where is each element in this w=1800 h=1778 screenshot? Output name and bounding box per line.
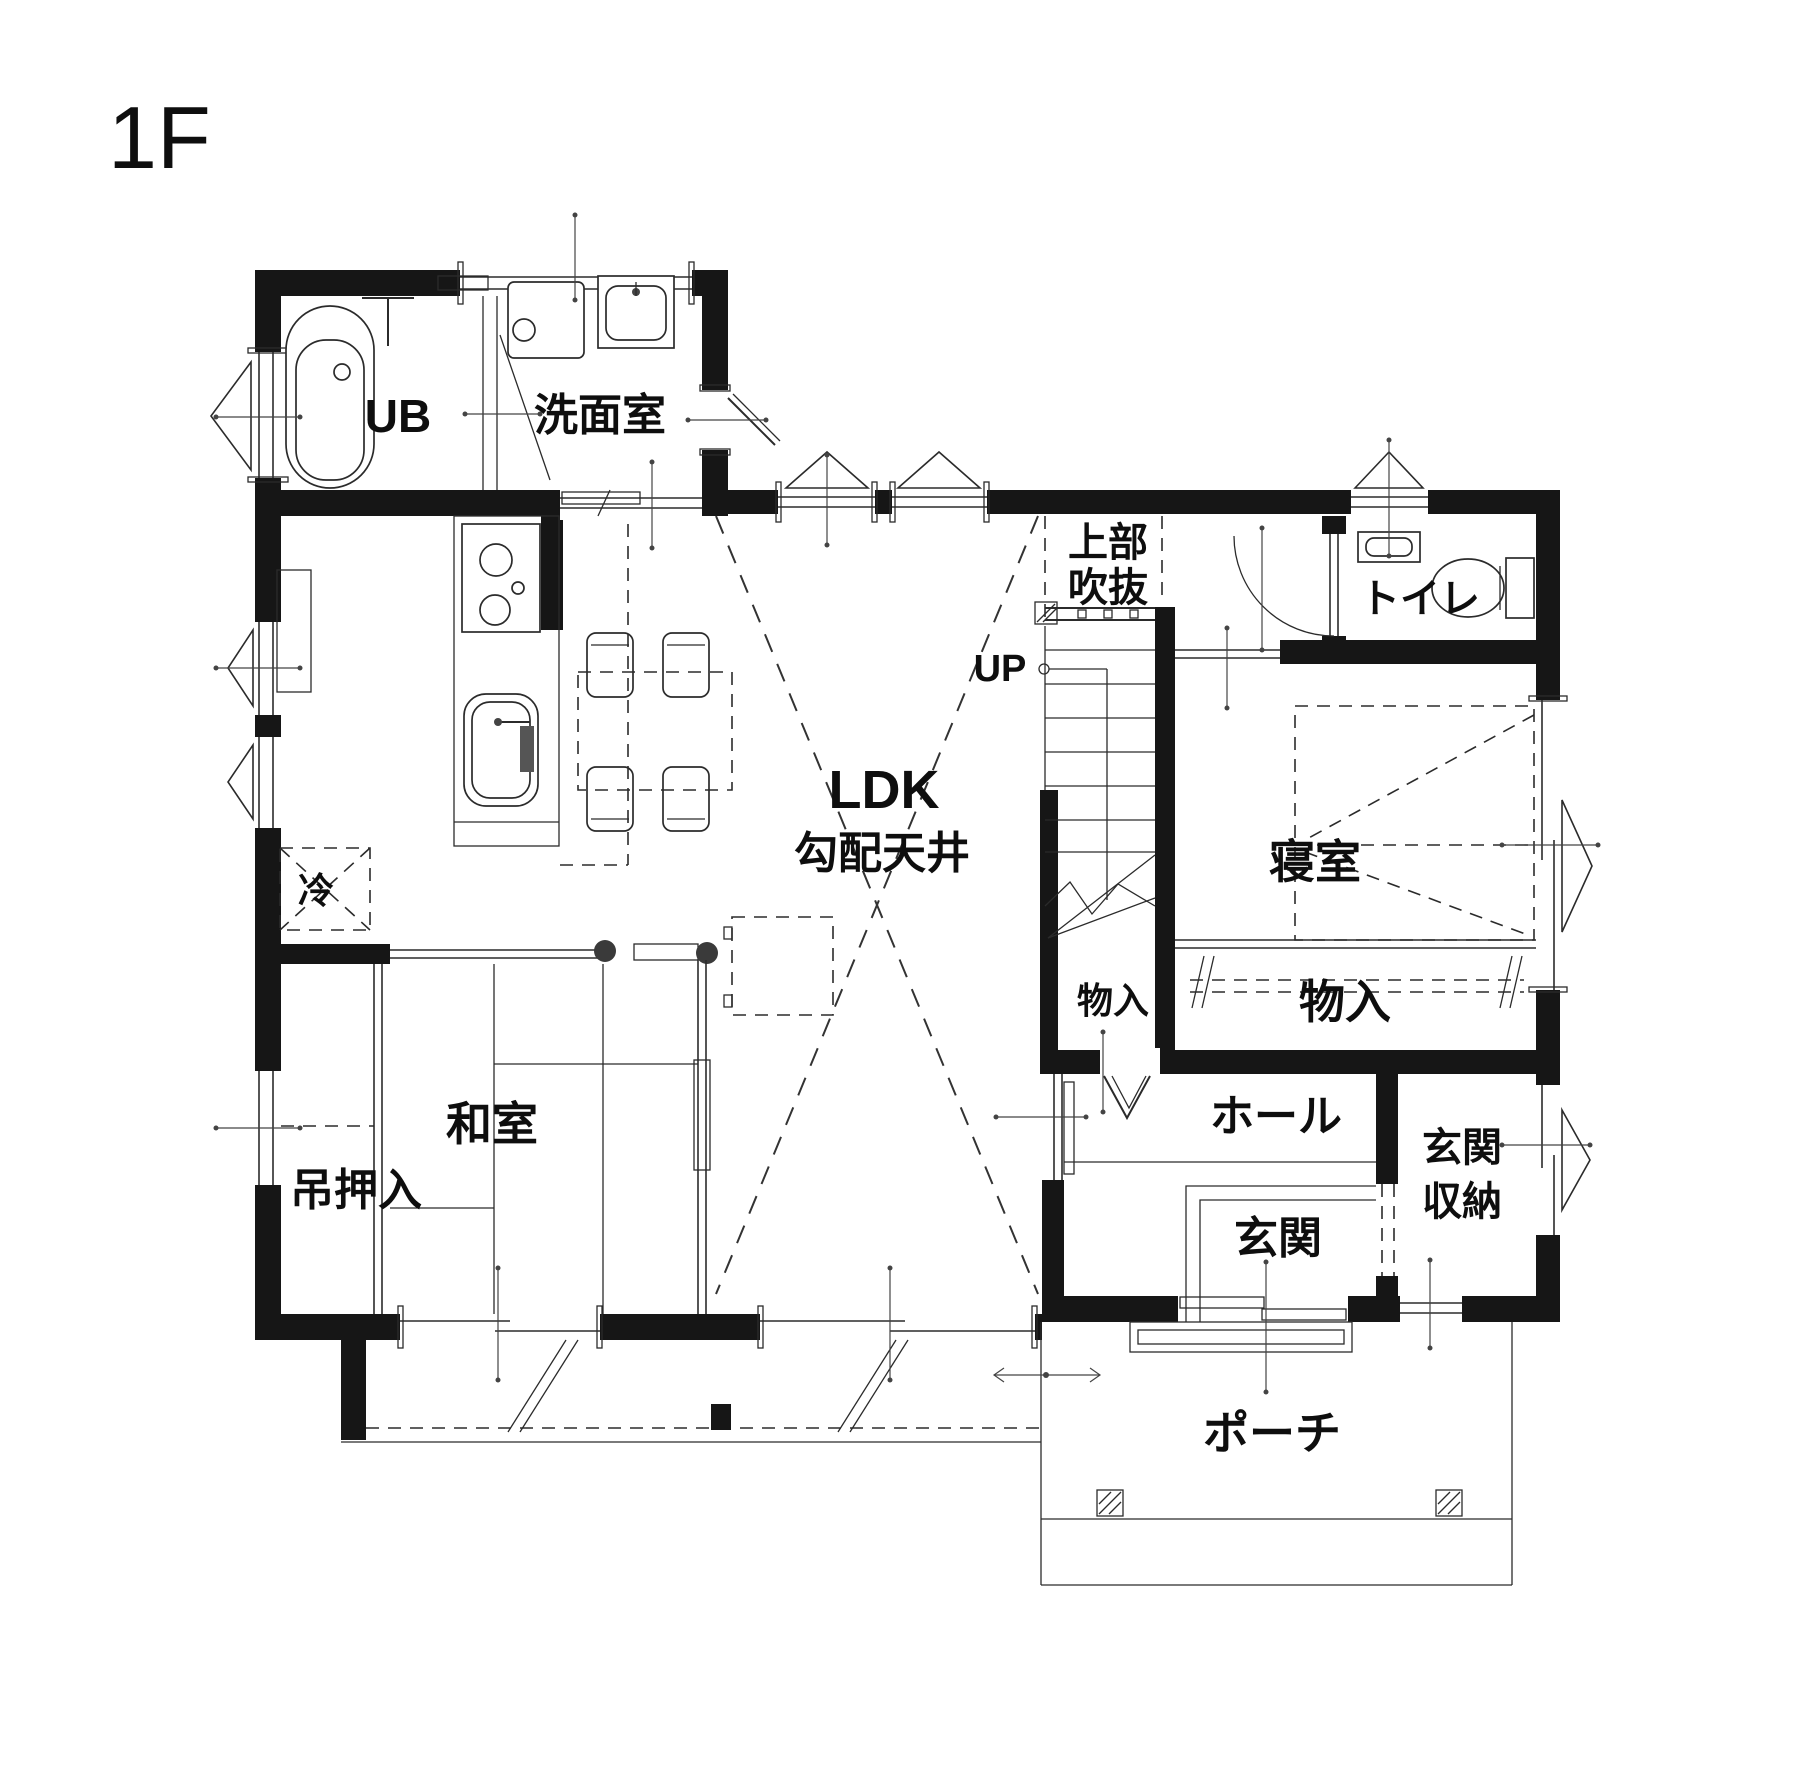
doors <box>374 296 1394 1352</box>
window-ldk-south <box>758 1306 1037 1348</box>
room-label-entrance: 玄関 <box>1234 1214 1322 1263</box>
room-label-washroom: 洗面室 <box>534 390 666 440</box>
floor-plan-page: 1F UB 洗面室 上部 吹抜 トイレ UP LDK 勾配天井 寝室 冷 物入 … <box>0 0 1800 1778</box>
stairs-up-label: UP <box>974 648 1027 690</box>
room-label-void-2: 吹抜 <box>1068 566 1148 610</box>
sliding-door-kitchen <box>560 486 702 520</box>
room-label-entrance-storage-1: 玄関 <box>1422 1126 1502 1170</box>
door-toilet <box>1234 534 1348 636</box>
window-storage-east <box>1531 1085 1590 1235</box>
window-storage-south <box>1400 1292 1462 1326</box>
stair-treads <box>1045 650 1155 938</box>
floor-plan-svg: 1F UB 洗面室 上部 吹抜 トイレ UP LDK 勾配天井 寝室 冷 物入 … <box>0 0 1800 1778</box>
living-table <box>724 917 833 1015</box>
sloped-ceiling-lines <box>716 516 1038 1294</box>
room-label-hall: ホール <box>1210 1092 1342 1141</box>
dining-set <box>578 633 732 831</box>
bed <box>1295 706 1534 940</box>
room-label-void-1: 上部 <box>1068 521 1148 565</box>
room-label-ldk-ceiling: 勾配天井 <box>794 829 970 878</box>
folding-door-storage <box>1100 1048 1160 1118</box>
vanity-sink <box>598 276 674 348</box>
room-label-bedroom: 寝室 <box>1269 836 1361 888</box>
room-label-storage-small: 物入 <box>1077 980 1149 1021</box>
porch-pillar <box>1097 1490 1123 1516</box>
room-label-washitsu: 和室 <box>446 1098 538 1150</box>
bathtub <box>286 306 374 488</box>
washer-pan <box>508 282 584 358</box>
window-ldk-north-2 <box>890 452 989 522</box>
room-label-toilet: トイレ <box>1360 577 1480 621</box>
floor-title: 1F <box>108 88 211 187</box>
room-label-hanging-closet: 吊押入 <box>290 1166 422 1215</box>
porch-pillar <box>1436 1490 1462 1516</box>
slide-arrow <box>994 1368 1100 1382</box>
room-label-storage-large: 物入 <box>1299 976 1391 1028</box>
sliding-door-storage <box>1382 1184 1394 1276</box>
sliding-door-hall <box>1054 1074 1074 1180</box>
deck <box>341 1340 1041 1442</box>
label-fridge: 冷 <box>298 870 334 911</box>
room-label-entrance-storage-2: 収納 <box>1422 1180 1502 1224</box>
room-label-ub: UB <box>365 390 431 442</box>
room-label-ldk: LDK <box>829 760 940 820</box>
window-ub-west <box>211 348 288 482</box>
washitsu-openings <box>374 940 718 1314</box>
window-washitsu-south <box>398 1306 602 1348</box>
window-bedroom-east <box>1529 696 1592 992</box>
room-label-porch: ポーチ <box>1203 1407 1341 1459</box>
